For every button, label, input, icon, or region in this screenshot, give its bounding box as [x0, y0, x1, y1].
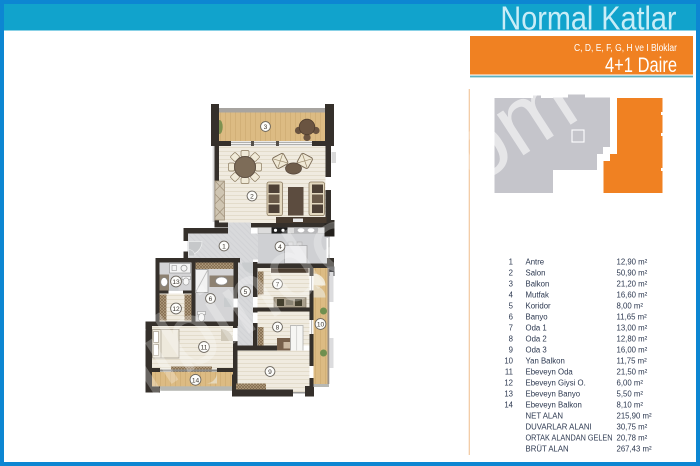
svg-text:BRÜT ALAN: BRÜT ALAN [526, 445, 569, 454]
svg-text:Banyo: Banyo [526, 313, 549, 322]
svg-text:215,90 m²: 215,90 m² [617, 412, 653, 421]
svg-text:20,78 m²: 20,78 m² [617, 434, 648, 443]
svg-text:Normal Katlar: Normal Katlar [500, 0, 676, 37]
svg-text:14: 14 [504, 401, 513, 410]
svg-text:ORTAK ALANDAN GELEN: ORTAK ALANDAN GELEN [526, 434, 613, 443]
svg-text:12,90 m²: 12,90 m² [617, 258, 648, 267]
svg-text:5,50 m²: 5,50 m² [617, 390, 644, 399]
svg-text:DUVARLAR ALANI: DUVARLAR ALANI [526, 423, 592, 432]
svg-text:4: 4 [509, 291, 514, 300]
svg-text:NET ALAN: NET ALAN [526, 412, 564, 421]
svg-text:4+1 Daire: 4+1 Daire [605, 53, 677, 77]
svg-text:11,65 m²: 11,65 m² [617, 313, 648, 322]
svg-text:Salon: Salon [526, 269, 546, 278]
svg-text:13: 13 [504, 390, 513, 399]
svg-text:3: 3 [509, 280, 513, 289]
svg-text:8,10 m²: 8,10 m² [617, 401, 644, 410]
svg-text:2: 2 [250, 194, 254, 201]
svg-text:6,00 m²: 6,00 m² [617, 379, 644, 388]
svg-text:10: 10 [504, 357, 513, 366]
svg-text:21,20 m²: 21,20 m² [617, 280, 648, 289]
svg-text:Mutfak: Mutfak [526, 291, 549, 300]
svg-text:30,75 m²: 30,75 m² [617, 423, 648, 432]
svg-text:12: 12 [504, 379, 513, 388]
svg-text:Ebeveyn Balkon: Ebeveyn Balkon [526, 401, 582, 410]
svg-text:5: 5 [509, 302, 514, 311]
svg-text:7: 7 [509, 324, 513, 333]
svg-text:Ebeveyn Giysi O.: Ebeveyn Giysi O. [526, 379, 586, 388]
svg-text:3: 3 [264, 124, 268, 131]
svg-text:6: 6 [509, 313, 513, 322]
svg-text:13,00 m²: 13,00 m² [617, 324, 648, 333]
svg-text:8: 8 [509, 335, 513, 344]
svg-text:Oda 2: Oda 2 [526, 335, 547, 344]
svg-text:11: 11 [505, 368, 513, 377]
svg-text:8,00 m²: 8,00 m² [617, 302, 644, 311]
svg-text:Ebeveyn Oda: Ebeveyn Oda [526, 368, 574, 377]
svg-text:2: 2 [509, 269, 513, 278]
svg-text:Antre: Antre [526, 258, 545, 267]
svg-text:Balkon: Balkon [526, 280, 550, 289]
svg-text:21,50 m²: 21,50 m² [617, 368, 648, 377]
svg-text:10: 10 [317, 322, 325, 329]
svg-text:1: 1 [222, 244, 226, 251]
svg-text:267,43 m²: 267,43 m² [617, 445, 653, 454]
svg-text:9: 9 [268, 369, 272, 376]
svg-text:9: 9 [509, 346, 513, 355]
svg-text:1: 1 [509, 258, 513, 267]
svg-text:Oda 1: Oda 1 [526, 324, 547, 333]
svg-text:50,90 m²: 50,90 m² [617, 269, 648, 278]
svg-text:Oda 3: Oda 3 [526, 346, 547, 355]
svg-text:16,60 m²: 16,60 m² [617, 291, 648, 300]
svg-text:Koridor: Koridor [526, 302, 552, 311]
svg-text:16,00 m²: 16,00 m² [617, 346, 648, 355]
svg-text:12,80 m²: 12,80 m² [617, 335, 648, 344]
svg-text:11,75 m²: 11,75 m² [617, 357, 648, 366]
svg-text:Ebeveyn Banyo: Ebeveyn Banyo [526, 390, 581, 399]
svg-text:Yan Balkon: Yan Balkon [526, 357, 565, 366]
